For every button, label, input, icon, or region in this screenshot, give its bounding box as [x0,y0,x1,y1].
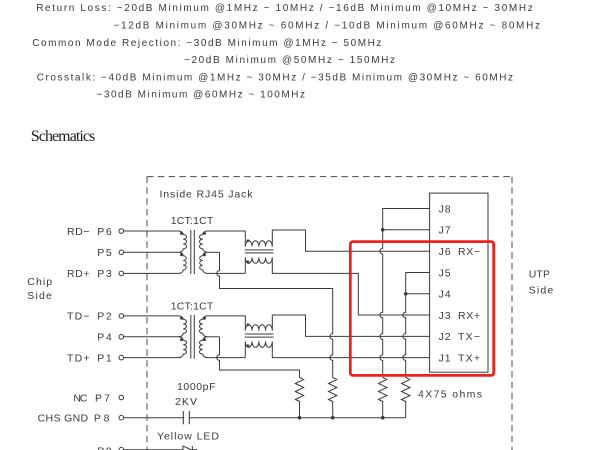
svg-text:Return Loss: −20dB Minimum @1M: Return Loss: −20dB Minimum @1MHz ~ 10MHz… [36,3,533,14]
svg-text:−12dB Minimum @30MHz ~ 60MHz /: −12dB Minimum @30MHz ~ 60MHz / −10dB Min… [114,20,541,31]
svg-text:TD+: TD+ [67,352,90,364]
svg-text:1CT:1CT: 1CT:1CT [171,215,214,227]
svg-text:TD−: TD− [67,311,90,323]
svg-text:J7: J7 [439,225,451,237]
svg-text:RX+: RX+ [458,310,480,322]
svg-text:Side: Side [27,290,52,302]
svg-text:Inside RJ45 Jack: Inside RJ45 Jack [160,189,254,201]
svg-text:J4: J4 [439,289,451,301]
svg-text:J3: J3 [439,310,451,322]
svg-text:1CT:1CT: 1CT:1CT [171,301,214,313]
svg-text:RD−: RD− [67,226,90,238]
svg-text:2KV: 2KV [175,396,197,408]
svg-text:Schematics: Schematics [31,128,96,145]
svg-text:NC: NC [73,392,87,404]
svg-text:J5: J5 [439,267,451,279]
svg-text:RD+: RD+ [67,268,90,280]
svg-text:UTP: UTP [529,268,550,280]
svg-text:J1: J1 [439,352,451,364]
svg-text:Chip: Chip [27,276,52,288]
svg-text:J8: J8 [439,203,451,215]
svg-text:Side: Side [529,284,554,296]
svg-text:−30dB Minimum @60MHz ~ 100MHz: −30dB Minimum @60MHz ~ 100MHz [97,90,306,101]
svg-text:TX−: TX− [458,331,480,343]
svg-text:1000pF: 1000pF [177,381,216,393]
svg-text:RX−: RX− [458,246,480,258]
svg-text:CHS GND: CHS GND [38,413,89,425]
svg-text:Crosstalk: −40dB Minimum @1MHz: Crosstalk: −40dB Minimum @1MHz ~ 30MHz /… [37,72,513,83]
svg-text:TX+: TX+ [458,352,480,364]
svg-text:4X75 ohms: 4X75 ohms [418,388,482,400]
svg-text:J6: J6 [439,246,451,258]
svg-text:−20dB Minimum @50MHz ~ 150MHz: −20dB Minimum @50MHz ~ 150MHz [184,55,395,66]
svg-text:J2: J2 [439,331,451,343]
svg-text:Yellow LED: Yellow LED [157,431,219,443]
